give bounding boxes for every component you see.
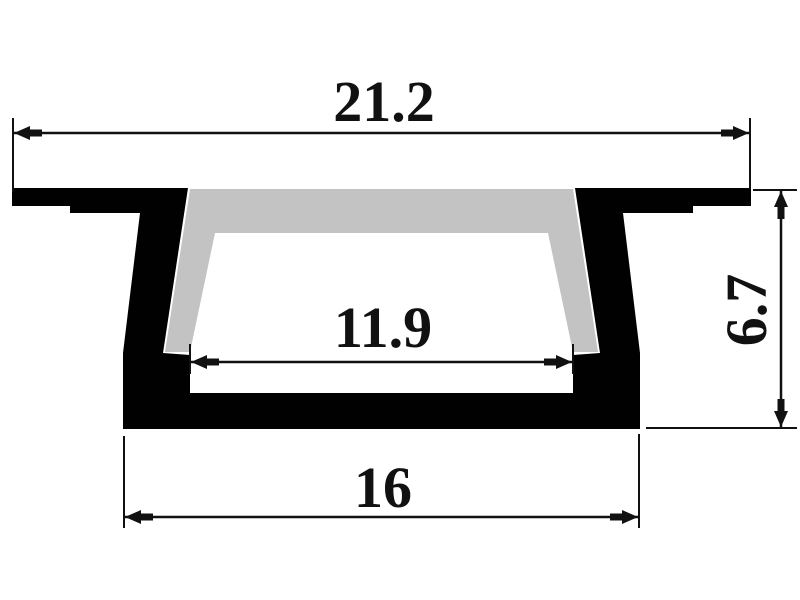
dimension-bottom-width: 16 [124, 434, 639, 528]
drawing-canvas: 21.2 11.9 16 [0, 0, 800, 600]
arrowhead-right-icon [610, 510, 638, 524]
dimension-top-width: 21.2 [13, 69, 750, 192]
arrowhead-up-icon [774, 191, 788, 219]
arrowhead-right-icon [544, 355, 572, 369]
dimension-label-top-width: 21.2 [333, 69, 435, 134]
arrowhead-down-icon [774, 399, 788, 427]
arrowhead-left-icon [191, 355, 219, 369]
arrowhead-left-icon [125, 510, 153, 524]
dimension-height: 6.7 [646, 190, 797, 428]
arrowhead-left-icon [14, 126, 42, 140]
arrowhead-right-icon [721, 126, 749, 140]
dimension-label-inner-width: 11.9 [334, 295, 432, 360]
dimension-label-bottom-width: 16 [354, 455, 412, 520]
dimension-inner-width: 11.9 [190, 295, 573, 374]
dimension-label-height: 6.7 [714, 274, 779, 347]
profile-technical-drawing: 21.2 11.9 16 [0, 0, 800, 600]
